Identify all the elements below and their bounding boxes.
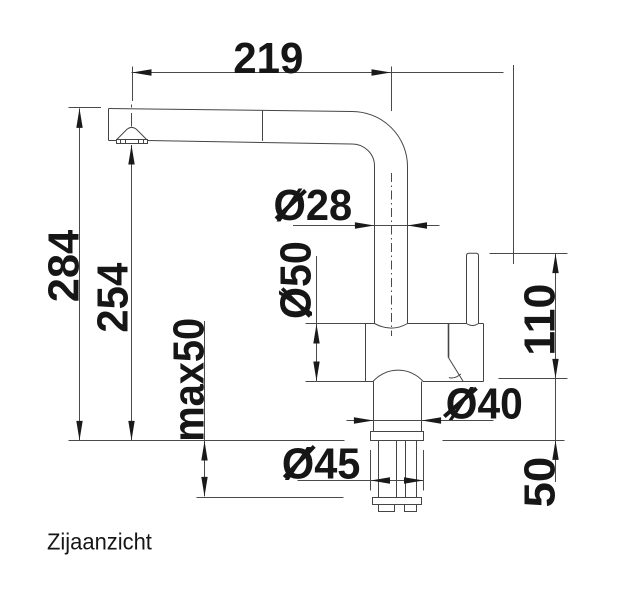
svg-text:Ø28: Ø28: [274, 182, 353, 230]
svg-text:Ø50: Ø50: [273, 241, 321, 319]
svg-text:Zijaanzicht: Zijaanzicht: [47, 529, 152, 555]
svg-text:284: 284: [41, 230, 89, 303]
svg-text:50: 50: [517, 457, 565, 508]
svg-text:110: 110: [517, 284, 565, 356]
svg-text:max50: max50: [166, 318, 214, 442]
svg-text:254: 254: [90, 263, 138, 333]
svg-text:Ø45: Ø45: [282, 441, 361, 489]
svg-text:219: 219: [233, 35, 303, 83]
